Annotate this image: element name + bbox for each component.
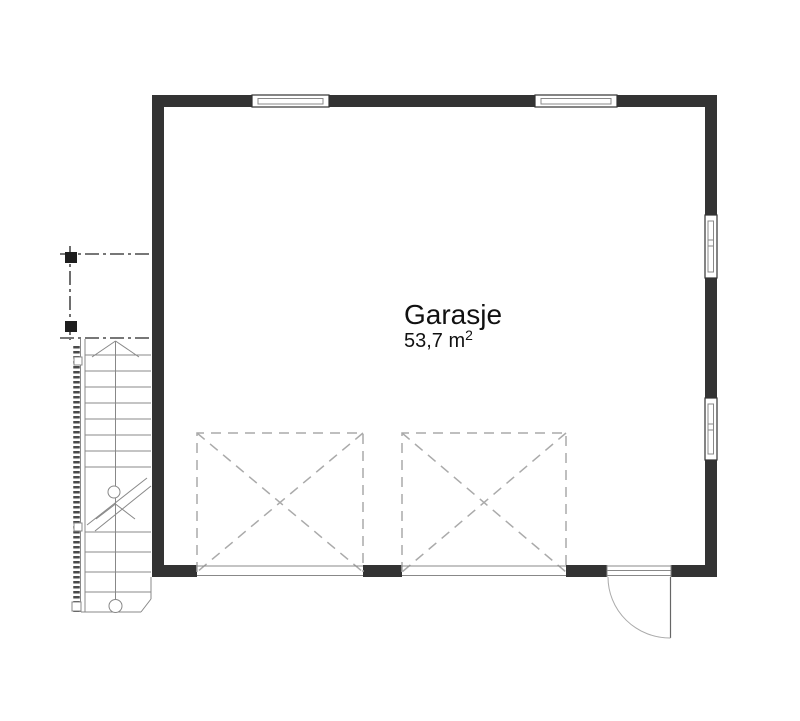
wall-bottom-segment-4: [671, 565, 717, 577]
garage-door-2: [402, 433, 566, 576]
entry-door: [607, 565, 671, 638]
entry-door-swing-arc: [608, 577, 671, 638]
stair-break-line: [95, 486, 151, 531]
wall-right-upper-segment: [705, 95, 717, 215]
stair-break-circle: [108, 486, 120, 498]
external-stair: [72, 339, 151, 613]
side-canopy: [60, 246, 152, 340]
canopy-post-bottom: [65, 321, 77, 332]
wall-top-left-segment: [152, 95, 252, 107]
wall-left: [152, 95, 164, 577]
wall-top-middle-segment: [329, 95, 535, 107]
stair-corner-chamfer: [141, 599, 151, 612]
garage-door-1: [197, 433, 363, 576]
wall-right-lower-segment: [705, 460, 717, 577]
canopy-post-top: [65, 252, 77, 263]
window-top-left: [252, 95, 329, 107]
wall-bottom-segment-2: [363, 565, 402, 577]
garage-door-2-diagonal: [402, 433, 566, 572]
room-area: 53,7 m2: [404, 327, 473, 352]
stair-start-circle: [109, 600, 122, 613]
wall-right-middle-segment: [705, 278, 717, 398]
room-name: Garasje: [404, 299, 502, 330]
stair-newel-marker: [74, 357, 82, 365]
stair-treads-upper: [85, 355, 151, 467]
garage-building: Garasje 53,7 m2: [152, 95, 717, 638]
stair-break-line: [87, 478, 147, 525]
floor-plan-canvas: Garasje 53,7 m2: [0, 0, 800, 721]
stair-treads-lower: [85, 532, 151, 592]
garage-door-1-diagonal: [197, 433, 363, 572]
window-right-upper: [705, 215, 717, 278]
floor-plan: Garasje 53,7 m2: [0, 0, 800, 721]
window-right-lower: [705, 398, 717, 460]
stair-newel-marker: [72, 602, 81, 611]
wall-top-right-segment: [617, 95, 717, 107]
room-label: Garasje 53,7 m2: [404, 299, 502, 352]
wall-bottom-segment-3: [566, 565, 607, 577]
wall-bottom-segment-1: [152, 565, 197, 577]
window-top-right: [535, 95, 617, 107]
stair-newel-marker: [74, 523, 82, 531]
